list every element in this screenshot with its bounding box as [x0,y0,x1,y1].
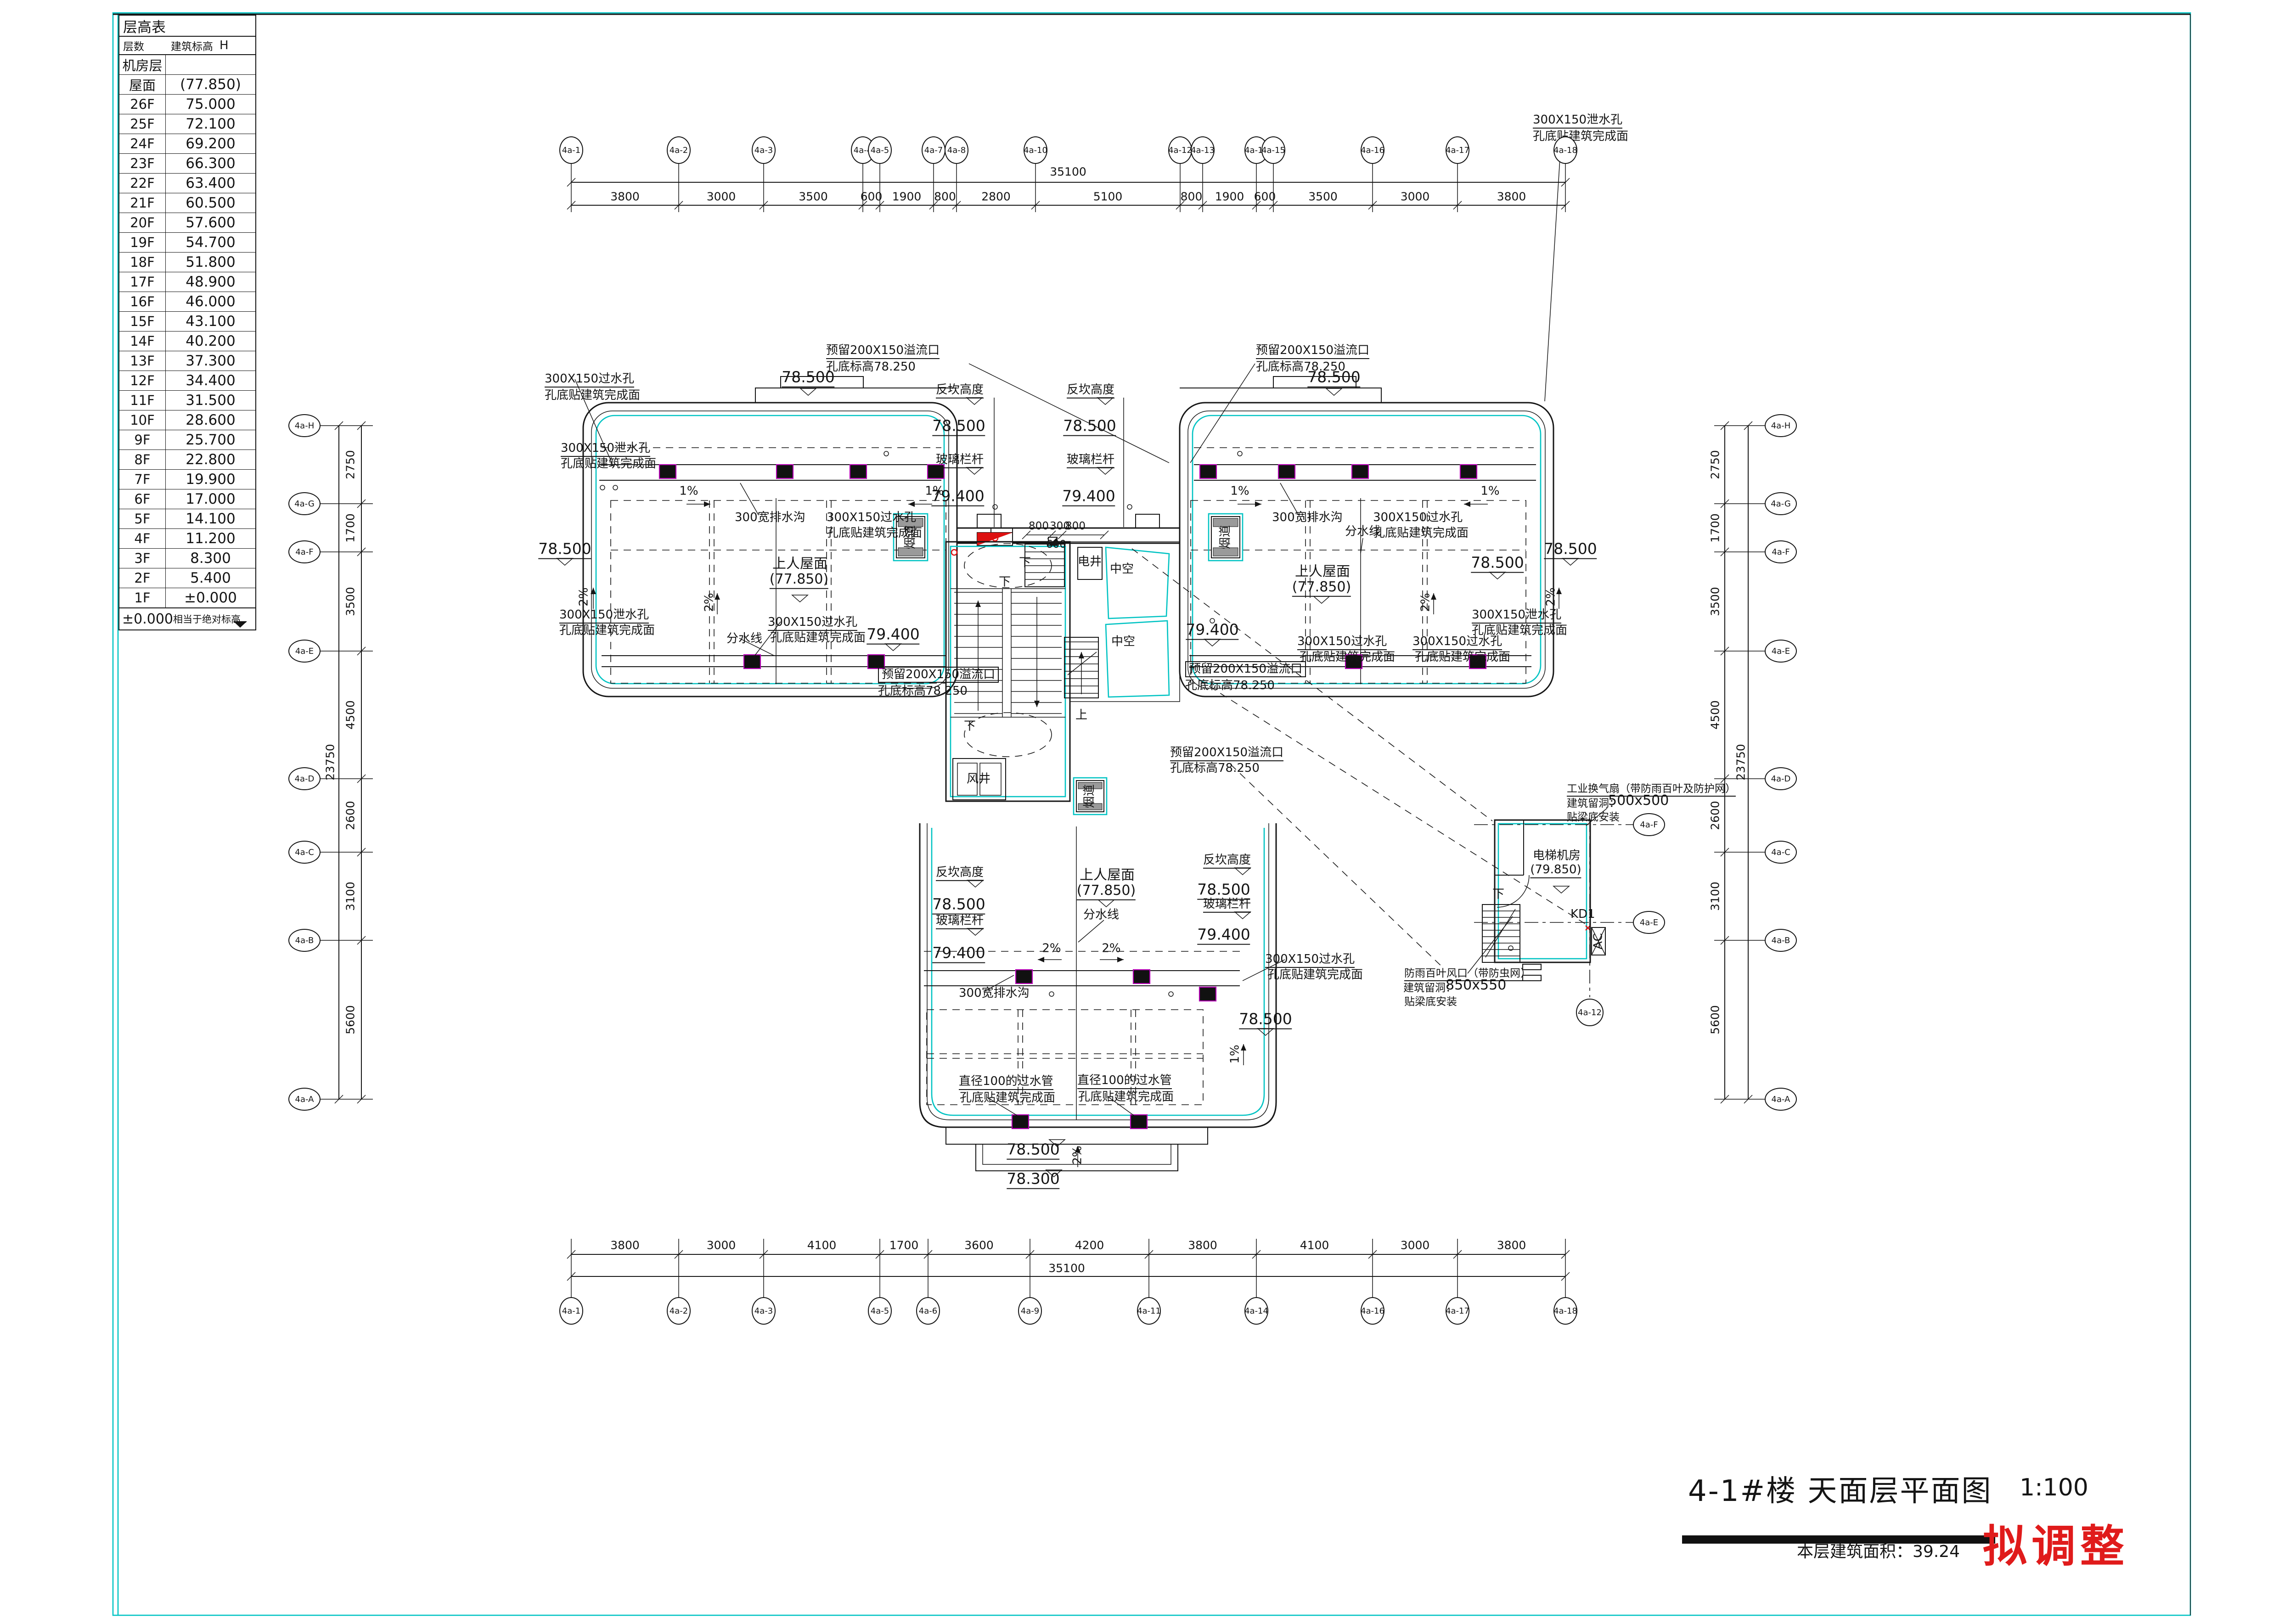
elevation-cell: 46.000 [166,293,255,310]
dimension-text: 23750 [324,744,337,781]
label-roof_access: 上人屋面 [1295,564,1350,579]
floor-table-rows: 机房层 屋面 (77.850) 26F 75.000 25F 72.100 [119,55,255,607]
label-zhongkong: 中空 [1110,563,1134,575]
floor-cell: 15F [119,312,166,331]
plan-line [1721,500,1729,508]
dimension-text: 800 [1181,190,1203,203]
label-hole_note: 孔底贴建筑完成面 [1533,130,1628,143]
drawing-sheet: 层高表 层数 建筑标高 H 机房层 屋面 (77.850) 26F 7 [0,0,2296,1624]
label-fengjing: 风井 [967,773,990,785]
floor-height-table: 层高表 层数 建筑标高 H 机房层 屋面 (77.850) 26F 7 [118,15,256,630]
label-pct1: 1% [679,485,698,497]
sheet-frame [113,13,2190,1615]
label-e78500: 78.500 [1063,418,1116,436]
elevation-cell: 40.200 [166,333,255,349]
col-h: H [213,39,229,52]
dimension-text: 3500 [799,190,828,203]
label-size500: 500x500 [1608,793,1669,808]
label-glass_rail: 玻璃栏杆 [1067,454,1114,468]
table-row: 10F 28.600 [119,410,255,430]
elevation-cell: ±0.000 [166,590,255,606]
elevation-cell: 19.900 [166,471,255,488]
elevation-cell: 48.900 [166,274,255,290]
axis-bubble-4a-17: 4a-17 [1446,1297,1469,1325]
plan-line [1721,1095,1729,1103]
plan-line [992,535,998,541]
plan-line [1199,987,1216,1001]
elevation-cell: 60.500 [166,195,255,211]
dimension-text: 3800 [610,1239,640,1252]
axis-bubble-4a-14: 4a-14 [1244,1297,1268,1325]
axis-bubble-4a-16: 4a-16 [1361,1297,1384,1325]
label-drain300: 300宽排水沟 [735,511,805,524]
label-hole_note: 孔底贴建筑完成面 [1415,651,1510,663]
axis-bubble-4a-6: 4a-6 [916,1297,940,1325]
plan-line [760,1250,768,1259]
label-pct2: 2% [1545,587,1557,606]
dimension-text: 3000 [1401,1239,1430,1252]
plan-line [1252,1250,1261,1259]
axis-bubble-4a-F: 4a-F [1633,813,1665,836]
label-pass_hole: 300X150过水孔 [545,373,634,388]
plan-line [675,1250,683,1259]
plan-line [1561,1250,1570,1259]
axis-bubble-4a-F: 4a-F [288,540,321,563]
plan-line [1744,421,1752,430]
floor-table-header: 层数 建筑标高 H [119,37,255,55]
label-xia: 下 [1492,888,1504,900]
plan-line [924,1250,932,1259]
label-pct1: 1% [925,485,944,497]
plan-line [1744,1095,1752,1103]
table-row: 4F 11.200 [119,529,255,549]
label-pct2: 2% [578,587,590,606]
plan-line [704,501,710,507]
label-pct2: 2% [1071,1146,1084,1164]
plan-line [1078,920,1104,942]
dimension-text: 4500 [344,700,357,730]
plan-line [357,647,366,655]
axis-bubble-4a-B: 4a-B [288,929,321,952]
dimension-text: 4100 [1300,1239,1329,1252]
revision-stamp: 拟调整 [1983,1511,2129,1574]
dimension-text: 600 [861,190,883,203]
table-row: 19F 54.700 [119,233,255,253]
floor-cell: 屋面 [119,75,166,94]
label-divide: 分水线 [726,633,762,645]
label-glass_rail: 玻璃栏杆 [936,915,984,929]
floor-cell: 18F [119,253,166,272]
plan-line [1235,912,1250,919]
table-row: 21F 60.500 [119,193,255,213]
elevation-cell: 14.100 [166,511,255,527]
floor-cell: 23F [119,154,166,173]
label-pass_hole: 300X150过水孔 [1297,635,1387,650]
label-drain_hole: 300X150泄水孔 [559,609,649,624]
label-shang: 上 [1075,709,1087,721]
plan-line [800,388,816,395]
table-footnote: ±0.000 相当于绝对标高 [119,607,255,629]
axis-bubble-4a-5: 4a-5 [868,136,892,164]
plan-line [1326,388,1342,395]
label-e79400: 79.400 [1062,489,1115,506]
axis-bubble-4a-5: 4a-5 [868,1297,892,1325]
dimension-text: 600 [1254,190,1276,203]
elevation-cell: 22.800 [166,451,255,468]
plan-line [357,936,366,944]
label-pass_hole: 300X150过水孔 [768,616,857,631]
dimension-text: 3000 [707,190,736,203]
label-ac: AC [1592,933,1604,949]
label-dianjing: 电井 [1078,556,1102,568]
axis-bubble-4a-18: 4a-18 [1553,1297,1577,1325]
plan-line [951,550,957,555]
table-row: 5F 14.100 [119,509,255,529]
axis-bubble-4a-A: 4a-A [1765,1088,1797,1111]
label-overflow: 预留200X150溢流口 [1185,661,1306,677]
plan-line [357,1095,366,1103]
axis-bubble-4a-D: 4a-D [288,767,321,790]
plan-line [1561,178,1570,186]
elevation-cell: 34.400 [166,372,255,389]
label-overflow: 预留200X150溢流口 [1170,747,1283,761]
axis-bubble-4a-2: 4a-2 [667,1297,691,1325]
axis-bubble-4a-3: 4a-3 [752,136,776,164]
plan-line [1016,970,1032,983]
table-row: 屋面 (77.850) [119,75,255,95]
plan-line [1368,201,1377,209]
label-drain300: 300宽排水沟 [1272,511,1343,524]
axis-bubble-4a-13: 4a-13 [1191,136,1215,164]
plan-line [969,364,1169,463]
label-e78300: 78.300 [1007,1171,1059,1189]
plan-line [1258,1028,1273,1035]
dimension-text: 4200 [1075,1239,1104,1252]
plan-line [1352,465,1368,478]
plan-line [1721,936,1729,944]
table-row: 11F 31.500 [119,391,255,410]
dimension-text: 5600 [344,1005,357,1034]
label-e78500: 78.500 [932,897,985,915]
axis-bubble-4a-C: 4a-C [288,841,321,864]
plan-line [1200,465,1216,478]
label-e79400: 79.400 [932,945,985,963]
label-elev_room: 电梯机房 [1533,849,1581,862]
plan-line [1314,596,1329,603]
floor-cell: 机房层 [119,55,166,74]
plan-line [975,601,981,607]
label-roof_elev: (77.850) [770,572,828,589]
elevation-cell: 51.800 [166,254,255,270]
label-pass_hole: 300X150过水孔 [1412,635,1502,650]
plan-line [1508,946,1513,950]
elevation-cell: 25.700 [166,432,255,448]
floor-cell: 1F [119,588,166,607]
label-pct2: 2% [703,593,715,612]
label-hole_note: 孔底贴建筑完成面 [1300,651,1395,663]
axis-bubble-4a-2: 4a-2 [667,136,691,164]
plan-line [1368,1250,1377,1259]
floor-cell: 11F [119,391,166,410]
dimension-text: 1700 [1709,513,1722,543]
plan-line [357,848,366,856]
plan-line [1545,137,1561,401]
label-e78500: 78.500 [1544,541,1597,559]
axis-bubble-4a-12: 4a-12 [1576,999,1604,1026]
label-roof_access: 上人屋面 [1080,868,1135,882]
label-hole_note: 孔底贴建筑完成面 [559,624,655,637]
label-pct2: 2% [1102,942,1120,955]
axis-bubble-4a-E: 4a-E [288,640,321,663]
table-row: 14F 40.200 [119,332,255,351]
table-row: 16F 46.000 [119,292,255,312]
label-hole_note: 孔底贴建筑完成面 [1267,969,1363,981]
plan-line [1561,201,1570,209]
plan-line [1034,701,1040,707]
label-overflow: 预留200X150溢流口 [826,344,940,359]
area-note: 本层建筑面积：39.24 [1797,1538,1960,1562]
plan-line [1464,501,1470,507]
plan-line [659,465,676,478]
plan-line [884,451,889,456]
dimension-text: 2750 [344,450,357,479]
plan-line [1235,868,1250,875]
floor-cell: 5F [119,509,166,528]
table-row: 24F 69.200 [119,134,255,154]
axis-bubble-4a-8: 4a-8 [945,136,968,164]
plan-line [335,421,343,430]
floor-cell: 3F [119,549,166,568]
table-row: 18F 51.800 [119,253,255,272]
label-hole_note: 孔底贴建筑完成面 [561,458,656,470]
floor-cell: 22F [119,174,166,193]
plan-line [567,201,575,209]
drawing-title: 4-1#楼 天面层平面图 [1688,1467,1992,1510]
dimension-text: 1900 [892,190,922,203]
label-overflow: 预留200X150溢流口 [1256,344,1369,359]
plan-line [1460,465,1477,478]
dimension-text: 1700 [344,513,357,543]
dimension-text: 2600 [344,801,357,830]
label-e78500: 78.500 [1307,370,1360,388]
floor-cell: 6F [119,489,166,509]
table-row: 20F 57.600 [119,213,255,233]
plan-line [1468,916,1513,973]
table-row: 17F 48.900 [119,272,255,292]
drawing-scale: 1:100 [2020,1474,2088,1501]
plan-line [557,558,573,565]
plan-line [1361,538,1363,553]
axis-bubble-4a-G: 4a-G [288,492,321,515]
label-hole_note: 孔底贴建筑完成面 [1078,1091,1174,1103]
label-pct2: 2% [1419,593,1432,612]
elevation-cell: (77.850) [166,76,255,93]
axis-bubble-4a-E: 4a-E [1633,911,1665,934]
label-d800: 800 [1029,521,1049,532]
label-pass_hole: 300X150过水孔 [827,511,916,524]
plan-line [1453,201,1462,209]
plan-line [1721,421,1729,430]
plan-line [357,421,366,430]
plan-line [1721,548,1729,556]
dimension-text: 1900 [1215,190,1244,203]
plan-line [1145,1250,1153,1259]
label-roof_access: 上人屋面 [772,556,827,571]
plan-line [1453,1250,1462,1259]
label-pct1: 1% [1230,485,1249,497]
axis-bubble-4a-F: 4a-F [1765,540,1797,563]
dimension-text: 2800 [981,190,1011,203]
label-e78500: 78.500 [1007,1142,1059,1160]
plan-line [1204,639,1220,646]
label-fan_note3: 贴梁底安装 [1404,996,1457,1007]
table-row: 1F ±0.000 [119,588,255,607]
plan-line [777,465,793,478]
label-pipe100: 直径100的过水管 [959,1075,1053,1090]
axis-bubble-4a-1: 4a-1 [559,1297,583,1325]
axis-bubble-4a-1: 4a-1 [559,136,583,164]
floor-cell: 16F [119,292,166,311]
floor-cell: 19F [119,233,166,252]
elevation-cell: 5.400 [166,570,255,586]
elevation-cell: 37.300 [166,353,255,369]
label-roof_elev: (77.850) [1077,883,1136,900]
plan-line [1079,652,1084,658]
elevation-cell: 72.100 [166,116,255,132]
axis-bubble-4a-18: 4a-18 [1553,136,1577,164]
label-glass_rail: 玻璃栏杆 [1203,898,1251,913]
plan-line [1563,558,1578,565]
table-row: 13F 37.300 [119,351,255,371]
label-hole_note: 孔底贴建筑完成面 [1472,624,1567,637]
axis-bubble-4a-E: 4a-E [1765,640,1797,663]
floor-cell: 9F [119,430,166,450]
plan-line [1190,364,1255,463]
table-row: 25F 72.100 [119,114,255,134]
floor-cell: 20F [119,213,166,232]
footnote-value: ±0.000 [122,611,173,627]
label-hole_note: 孔底贴建筑完成面 [960,1092,1055,1104]
dimension-text: 3500 [1709,587,1722,616]
dimension-text: 5100 [1093,190,1123,203]
col-elev: 建筑标高 [169,38,213,53]
plan-line [792,595,808,602]
dimension-text: 3800 [610,190,640,203]
plan-line [1031,201,1040,209]
floor-cell: 24F [119,134,166,153]
dimension-text: 5600 [1709,1005,1722,1034]
dimension-text: 2750 [1709,450,1722,479]
elevation-cell: 8.300 [166,550,255,567]
plan-line [1097,398,1113,405]
label-divide: 分水线 [1345,525,1381,538]
label-yandao: 烟道 [1219,525,1232,549]
dimension-text: 3800 [1497,1239,1526,1252]
plan-line [591,588,596,594]
plan-line [967,398,982,405]
label-xia: 下 [964,720,976,732]
axis-bubble-4a-16: 4a-16 [1361,136,1384,164]
plan-line [967,467,982,474]
plan-line [1490,572,1505,579]
elevation-marker-icon [233,621,247,628]
table-row: 12F 34.400 [119,371,255,391]
plan-line [850,465,867,478]
elevation-cell: 66.300 [166,155,255,172]
dimension-text: 3800 [1497,190,1526,203]
axis-bubble-4a-A: 4a-A [288,1088,321,1111]
plan-line [1026,1250,1034,1259]
label-e79400: 79.400 [867,627,919,645]
dimension-text: 800 [934,190,956,203]
axis-bubble-4a-H: 4a-H [288,414,321,437]
plan-line [357,775,366,783]
plan-line [993,505,997,509]
elevation-cell: 31.500 [166,392,255,409]
label-xia: 下 [999,576,1011,588]
dimension-text: 3000 [707,1239,736,1252]
elevation-cell: 11.200 [166,530,255,547]
floor-cell: 4F [119,529,166,548]
label-yandao: 烟道 [1083,784,1096,808]
label-e79400: 79.400 [1186,622,1238,640]
plan-line [885,644,901,651]
label-fankan: 反坎高度 [936,866,984,881]
dimension-text: 4100 [807,1239,837,1252]
plan-line [760,201,768,209]
table-row: 2F 5.400 [119,568,255,588]
dimension-text: 3100 [344,882,357,911]
elevation-cell: 69.200 [166,135,255,152]
dimension-text: 2600 [1709,801,1722,830]
plan-line [1169,992,1173,996]
dimension-text: 3800 [1188,1239,1217,1252]
label-pct1: 1% [1229,1045,1241,1063]
label-xia: 下 [1019,556,1031,569]
table-row: 机房层 [119,55,255,75]
dimension-text: 35100 [1050,165,1086,179]
dimension-text: 23750 [1734,744,1748,781]
elevation-cell: 28.600 [166,412,255,428]
axis-bubble-4a-11: 4a-11 [1137,1297,1161,1325]
label-size850: 850x550 [1446,978,1506,993]
plan-line [335,1095,343,1103]
elevation-cell: 17.000 [166,491,255,507]
plan-line [1255,501,1261,507]
label-pass_hole: 300X150过水孔 [1373,511,1463,524]
plan-line [1131,1115,1147,1129]
plan-line [1049,992,1054,996]
axis-bubble-4a-9: 4a-9 [1018,1297,1042,1325]
label-drain_hole: 300X150泄水孔 [1472,609,1561,624]
label-e78250_note: 孔底标高78.250 [826,361,916,373]
axis-bubble-4a-7: 4a-7 [922,136,945,164]
label-e78500: 78.500 [932,418,985,436]
plan-line [1133,970,1150,983]
dimension-text: 35100 [1048,1262,1085,1275]
label-pipe100: 直径100的过水管 [1077,1074,1172,1089]
label-e78500: 78.500 [538,541,591,559]
table-row: 23F 66.300 [119,154,255,174]
label-e78250_note: 孔底标高78.250 [878,685,968,697]
plan-line [600,485,605,490]
plan-line [357,548,366,556]
dimension-text: 3000 [1401,190,1430,203]
floor-cell: 21F [119,193,166,213]
floor-table-title: 层高表 [119,16,255,37]
plan-line [968,880,983,887]
label-e78250_note: 孔底标高78.250 [1185,680,1275,692]
